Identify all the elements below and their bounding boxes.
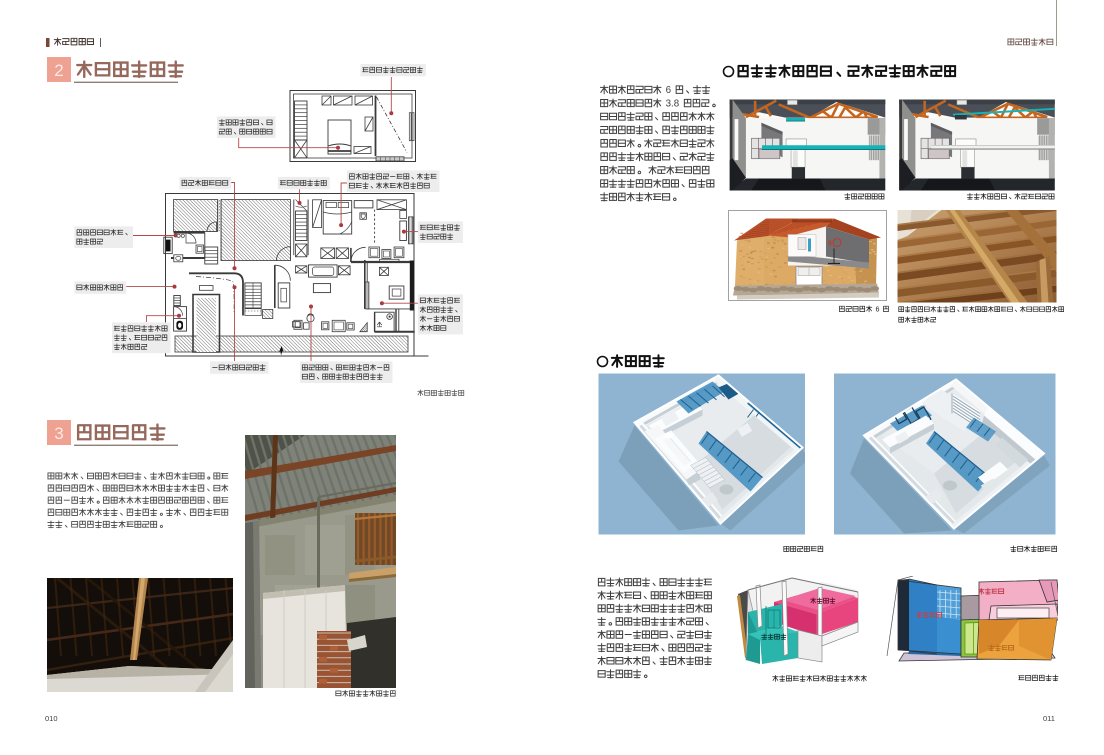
svg-text:3: 3 xyxy=(54,424,63,443)
svg-text:2: 2 xyxy=(54,61,63,80)
svg-text:6: 6 xyxy=(828,241,832,248)
svg-text:010: 010 xyxy=(45,714,58,723)
svg-text:011: 011 xyxy=(1043,714,1055,723)
svg-text:6: 6 xyxy=(666,85,671,96)
svg-text:6: 6 xyxy=(876,305,880,313)
svg-text:3.8: 3.8 xyxy=(666,98,680,109)
